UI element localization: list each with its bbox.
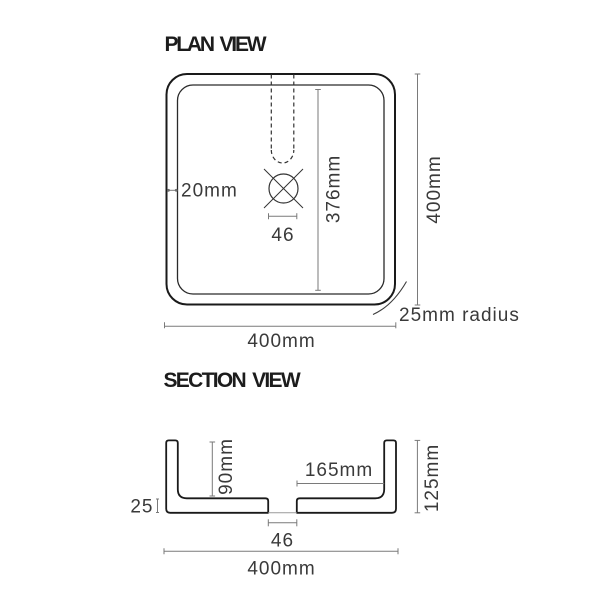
svg-text:25mm radius: 25mm radius [399,305,520,326]
svg-text:125mm: 125mm [422,444,443,512]
svg-text:46: 46 [271,531,294,552]
svg-text:90mm: 90mm [216,438,237,495]
svg-text:25: 25 [130,497,153,518]
svg-text:400mm: 400mm [247,331,315,352]
svg-text:376mm: 376mm [323,155,344,223]
svg-text:PLAN VIEW: PLAN VIEW [165,33,267,56]
svg-text:SECTION VIEW: SECTION VIEW [164,369,301,392]
svg-text:20mm: 20mm [181,181,238,202]
svg-text:400mm: 400mm [247,559,315,580]
svg-text:165mm: 165mm [305,460,373,481]
svg-text:46: 46 [271,225,294,246]
svg-text:400mm: 400mm [424,155,445,223]
